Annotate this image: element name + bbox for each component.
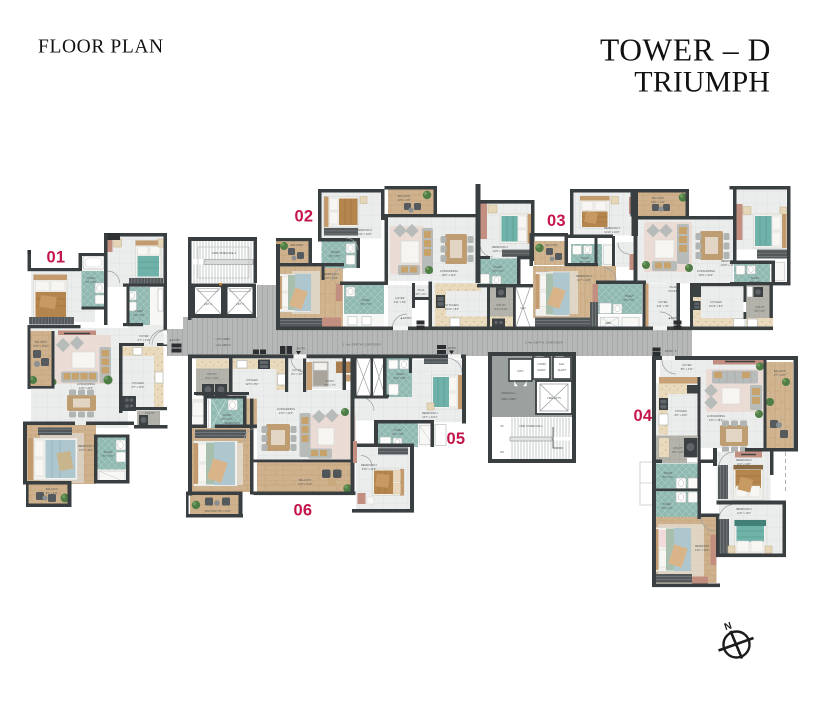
svg-text:UP: UP <box>500 424 504 428</box>
svg-text:FLOOR PLAN: FLOOR PLAN <box>38 37 164 58</box>
svg-text:FIRE STAIRCASE 4: FIRE STAIRCASE 4 <box>212 251 236 255</box>
svg-text:BALCONY: BALCONY <box>774 369 787 373</box>
svg-text:LIFT LOBBY: LIFT LOBBY <box>216 337 231 341</box>
svg-text:LIVING/DINING: LIVING/DINING <box>707 414 725 418</box>
svg-text:◀ ENTRY: ◀ ENTRY <box>668 316 680 320</box>
svg-text:5'6" x 8'6": 5'6" x 8'6" <box>85 280 96 284</box>
svg-text:UTILITY: UTILITY <box>145 411 155 415</box>
svg-text:8'0" x 5'0": 8'0" x 5'0" <box>102 454 113 458</box>
svg-text:10'7" x 12'11": 10'7" x 12'11" <box>422 415 438 419</box>
svg-text:13'0" x 12'6": 13'0" x 12'6" <box>324 276 338 280</box>
svg-text:FOYER: FOYER <box>683 363 692 367</box>
svg-text:BEDROOM 1: BEDROOM 1 <box>224 421 240 425</box>
svg-text:11'10" x 10'0": 11'10" x 10'0" <box>356 232 372 236</box>
svg-text:TOILET: TOILET <box>361 298 370 302</box>
svg-text:FIRE STAIRCASE 4: FIRE STAIRCASE 4 <box>519 424 543 428</box>
svg-text:5'10" x 8'6": 5'10" x 8'6" <box>394 376 407 380</box>
svg-text:FIRE LOBBY: FIRE LOBBY <box>501 397 517 401</box>
svg-text:01: 01 <box>47 249 66 267</box>
svg-text:1.4m DEPTH: 1.4m DEPTH <box>215 343 230 347</box>
svg-text:TOILET: TOILET <box>222 413 231 417</box>
svg-text:4'0" x 8'1": 4'0" x 8'1" <box>754 309 765 313</box>
svg-text:BALCONY: BALCONY <box>35 340 48 344</box>
svg-text:13'5" x 4'0": 13'5" x 4'0" <box>398 198 411 202</box>
svg-text:TOILET: TOILET <box>624 294 633 298</box>
svg-text:LIVING/DINING: LIVING/DINING <box>440 269 458 273</box>
svg-text:KITCHEN: KITCHEN <box>445 303 458 307</box>
svg-text:KITCHEN: KITCHEN <box>246 378 258 382</box>
svg-text:8'0" x 5'0": 8'0" x 5'0" <box>360 302 371 306</box>
svg-text:BEDROOM 1: BEDROOM 1 <box>576 274 592 278</box>
svg-text:8'0" x 5'0": 8'0" x 5'0" <box>221 417 232 421</box>
svg-text:27'0" x 14'0": 27'0" x 14'0" <box>279 411 293 415</box>
svg-text:8'0" x 5'0": 8'0" x 5'0" <box>672 450 683 454</box>
svg-text:TOILET: TOILET <box>86 276 95 280</box>
svg-text:UTILITY: UTILITY <box>673 446 683 450</box>
svg-text:6'7" x 4'10": 6'7" x 4'10" <box>138 338 151 342</box>
svg-text:02: 02 <box>295 208 314 226</box>
svg-text:KITCHEN: KITCHEN <box>132 381 144 385</box>
svg-text:06: 06 <box>294 502 313 520</box>
svg-text:1.4m DEPTH CORRIDOR: 1.4m DEPTH CORRIDOR <box>525 341 563 345</box>
svg-text:TOILET: TOILET <box>330 250 339 254</box>
svg-text:4'11" x 8'2": 4'11" x 8'2" <box>394 300 407 304</box>
svg-text:10'10" x 8'2": 10'10" x 8'2" <box>445 307 459 311</box>
svg-text:BALCONY: BALCONY <box>652 196 665 200</box>
svg-text:LIVING/DINING: LIVING/DINING <box>77 382 95 386</box>
svg-text:◀ ENTRY: ◀ ENTRY <box>400 316 412 320</box>
svg-text:5'1" x 5'10": 5'1" x 5'10" <box>495 307 508 311</box>
svg-text:03: 03 <box>547 212 566 230</box>
svg-text:UTILITY: UTILITY <box>207 372 217 376</box>
svg-text:BEDROOM 2: BEDROOM 2 <box>356 228 372 232</box>
svg-text:FOYER: FOYER <box>140 334 149 338</box>
svg-text:BEDROOM 1: BEDROOM 1 <box>736 507 752 511</box>
svg-text:TOILET: TOILET <box>580 256 589 260</box>
svg-text:8'0" x 4'0": 8'0" x 4'0" <box>661 506 672 510</box>
svg-text:DN: DN <box>500 450 504 454</box>
svg-text:BEDROOM 3: BEDROOM 3 <box>492 245 508 249</box>
svg-text:FIRE LIFTS: FIRE LIFTS <box>547 396 561 400</box>
svg-text:LIFT 3: LIFT 3 <box>236 302 244 306</box>
svg-text:10'0" x 4'11": 10'0" x 4'11" <box>651 200 665 204</box>
svg-text:BALCONY: BALCONY <box>299 478 312 482</box>
svg-text:LIFT 2: LIFT 2 <box>204 302 212 306</box>
svg-text:LIVING/DINING: LIVING/DINING <box>697 269 715 273</box>
svg-text:BEDROOM 1: BEDROOM 1 <box>422 411 438 415</box>
svg-text:BEDROOM 1: BEDROOM 1 <box>323 272 339 276</box>
svg-text:05: 05 <box>447 430 466 448</box>
svg-text:BEDROOM: BEDROOM <box>695 544 708 548</box>
svg-text:4'0" x 3'1": 4'0" x 3'1" <box>415 292 426 296</box>
svg-text:10'10" x 8'2": 10'10" x 8'2" <box>709 304 723 308</box>
svg-text:4'7" x 16'7": 4'7" x 16'7" <box>774 373 787 377</box>
svg-text:26'0" x 14'2": 26'0" x 14'2" <box>442 273 456 277</box>
svg-text:BALCONY: BALCONY <box>546 243 559 247</box>
svg-text:BALCONY: BALCONY <box>291 243 304 247</box>
svg-text:TOILET: TOILET <box>395 372 404 376</box>
svg-text:TOILET: TOILET <box>750 276 759 280</box>
svg-text:11'7" x 12'6": 11'7" x 12'6" <box>577 278 591 282</box>
svg-text:9'10" x 12'6": 9'10" x 12'6" <box>362 467 376 471</box>
svg-text:11'0" x 10'0": 11'0" x 10'0" <box>737 462 751 466</box>
svg-text:BEDROOM 2: BEDROOM 2 <box>361 463 377 467</box>
svg-text:BEDROOM 1: BEDROOM 1 <box>78 444 94 448</box>
svg-text:UTILITY: UTILITY <box>496 303 506 307</box>
svg-text:ELE.: ELE. <box>559 362 565 366</box>
svg-text:4'11" x 8'2": 4'11" x 8'2" <box>657 304 670 308</box>
svg-text:UTILITY: UTILITY <box>755 305 765 309</box>
svg-text:ENTRY: ENTRY <box>448 346 457 350</box>
svg-text:TOILET: TOILET <box>134 309 143 313</box>
svg-text:14'9" x 20'6": 14'9" x 20'6" <box>79 386 93 390</box>
svg-text:PUJA: PUJA <box>418 288 425 292</box>
svg-text:SHAFT: SHAFT <box>537 368 546 372</box>
svg-text:KITCHEN: KITCHEN <box>710 300 722 304</box>
svg-text:FOYER: FOYER <box>659 300 668 304</box>
svg-text:BEDROOM 2: BEDROOM 2 <box>736 458 752 462</box>
svg-text:STUDY: STUDY <box>326 379 335 383</box>
svg-text:TOILET: TOILET <box>662 502 671 506</box>
svg-text:14'2" x 12'0": 14'2" x 12'0" <box>695 548 709 552</box>
svg-text:6'7" x 10'0": 6'7" x 10'0" <box>132 385 145 389</box>
svg-text:TOILET: TOILET <box>393 428 402 432</box>
svg-text:KITCHEN: KITCHEN <box>675 409 687 413</box>
svg-text:FWC: FWC <box>518 369 524 373</box>
svg-text:SHAFT: SHAFT <box>558 368 567 372</box>
svg-text:8'0" x 4'0": 8'0" x 4'0" <box>662 475 673 479</box>
svg-text:8'4" x 7'4": 8'4" x 7'4" <box>324 383 335 387</box>
svg-text:9'0" x 5'0": 9'0" x 5'0" <box>392 432 403 436</box>
svg-text:04: 04 <box>634 407 653 425</box>
svg-text:FOYER: FOYER <box>396 296 405 300</box>
svg-text:8'0" x 4'11": 8'0" x 4'11" <box>681 367 694 371</box>
svg-text:12'0" x 8'4": 12'0" x 8'4" <box>246 382 259 386</box>
svg-text:26'0" x 14'2": 26'0" x 14'2" <box>699 273 713 277</box>
svg-text:PUJA: PUJA <box>670 285 677 289</box>
svg-text:LIVING/DINING: LIVING/DINING <box>277 407 295 411</box>
svg-text:TOILET: TOILET <box>103 450 112 454</box>
svg-text:COMM: COMM <box>537 362 545 366</box>
svg-text:ENTRY: ENTRY <box>297 347 306 351</box>
svg-text:BALCONY 8'1" x 3'11": BALCONY 8'1" x 3'11" <box>205 509 231 513</box>
svg-text:BEDROOM 3: BEDROOM 3 <box>604 226 620 230</box>
svg-text:12'0" x 11'0": 12'0" x 11'0" <box>737 511 751 515</box>
svg-text:TOILET: TOILET <box>493 265 502 269</box>
svg-text:GR2: GR2 <box>520 306 526 310</box>
svg-text:BALCONY: BALCONY <box>46 487 59 491</box>
svg-text:1.4m DEPTH CORRIDOR: 1.4m DEPTH CORRIDOR <box>343 343 381 347</box>
svg-text:◀ ENTRY: ◀ ENTRY <box>169 338 181 342</box>
svg-text:13'1" x 11'2": 13'1" x 11'2" <box>79 448 93 452</box>
svg-text:OBR: OBR <box>605 321 611 325</box>
svg-text:8'0" x 10'0": 8'0" x 10'0" <box>675 413 688 417</box>
svg-text:14'1" x 18'1": 14'1" x 18'1" <box>709 418 723 422</box>
svg-text:ENTRY ▼: ENTRY ▼ <box>665 349 677 353</box>
svg-text:11'10" x 10'0": 11'10" x 10'0" <box>604 230 620 234</box>
svg-text:TERRACE 4 -: TERRACE 4 - <box>501 391 517 395</box>
svg-text:TOILET: TOILET <box>663 471 672 475</box>
svg-text:8'0" x 5'0": 8'0" x 5'0" <box>329 254 340 258</box>
svg-text:TRIUMPH: TRIUMPH <box>634 66 770 99</box>
svg-text:TOWER – D: TOWER – D <box>600 33 771 68</box>
svg-text:8'0" x 5'0": 8'0" x 5'0" <box>623 298 634 302</box>
svg-text:BALCONY: BALCONY <box>398 194 411 198</box>
svg-text:8'0" x 4'0": 8'0" x 4'0" <box>492 269 503 273</box>
svg-text:8'1" x 7'10": 8'1" x 7'10" <box>206 376 219 380</box>
svg-text:4'11" x 13'10": 4'11" x 13'10" <box>33 344 49 348</box>
svg-text:5'0" x 8'0": 5'0" x 8'0" <box>133 313 144 317</box>
svg-text:27'0" x 5'11": 27'0" x 5'11" <box>298 482 312 486</box>
svg-text:8'1" x 4'0": 8'1" x 4'0" <box>291 372 302 376</box>
